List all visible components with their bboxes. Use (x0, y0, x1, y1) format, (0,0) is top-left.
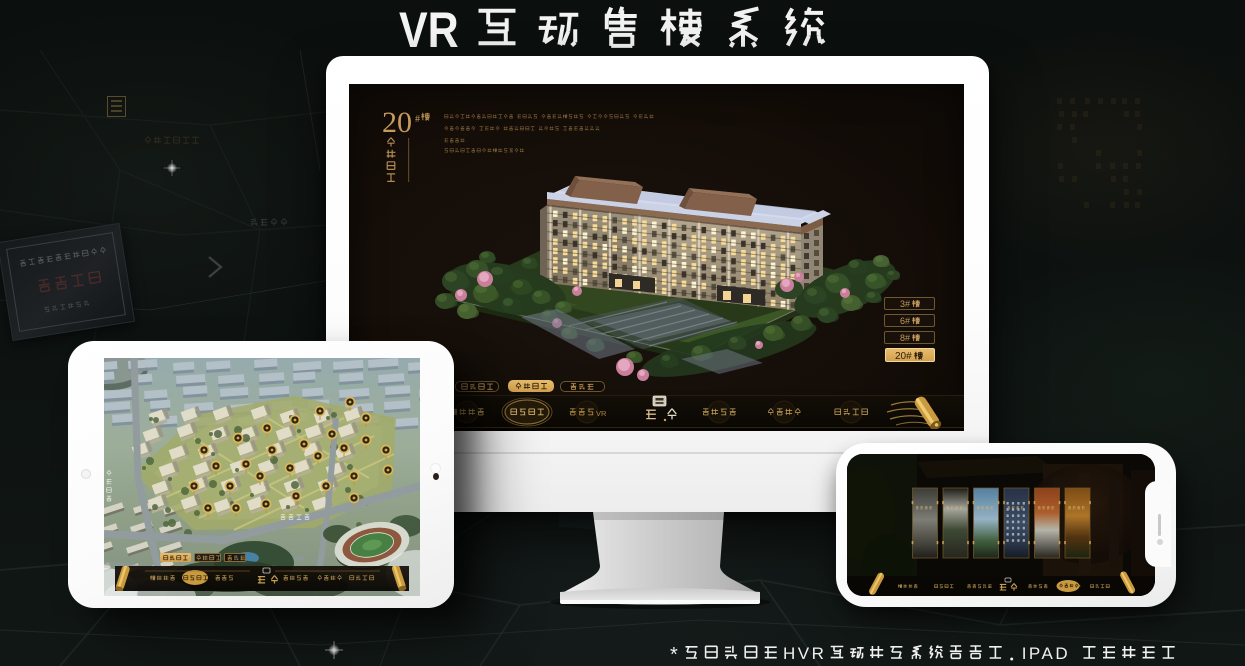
svg-text:VR: VR (596, 409, 607, 418)
svg-text:8#: 8# (900, 333, 910, 343)
svg-text:#: # (415, 114, 420, 125)
svg-text:IPAD: IPAD (1022, 644, 1070, 663)
svg-text:20: 20 (382, 106, 412, 139)
svg-text:HVR: HVR (783, 644, 826, 663)
svg-text:3#: 3# (900, 299, 910, 309)
svg-text:6#: 6# (900, 316, 910, 326)
svg-text:*: * (670, 644, 678, 666)
svg-text:20#: 20# (895, 351, 912, 362)
